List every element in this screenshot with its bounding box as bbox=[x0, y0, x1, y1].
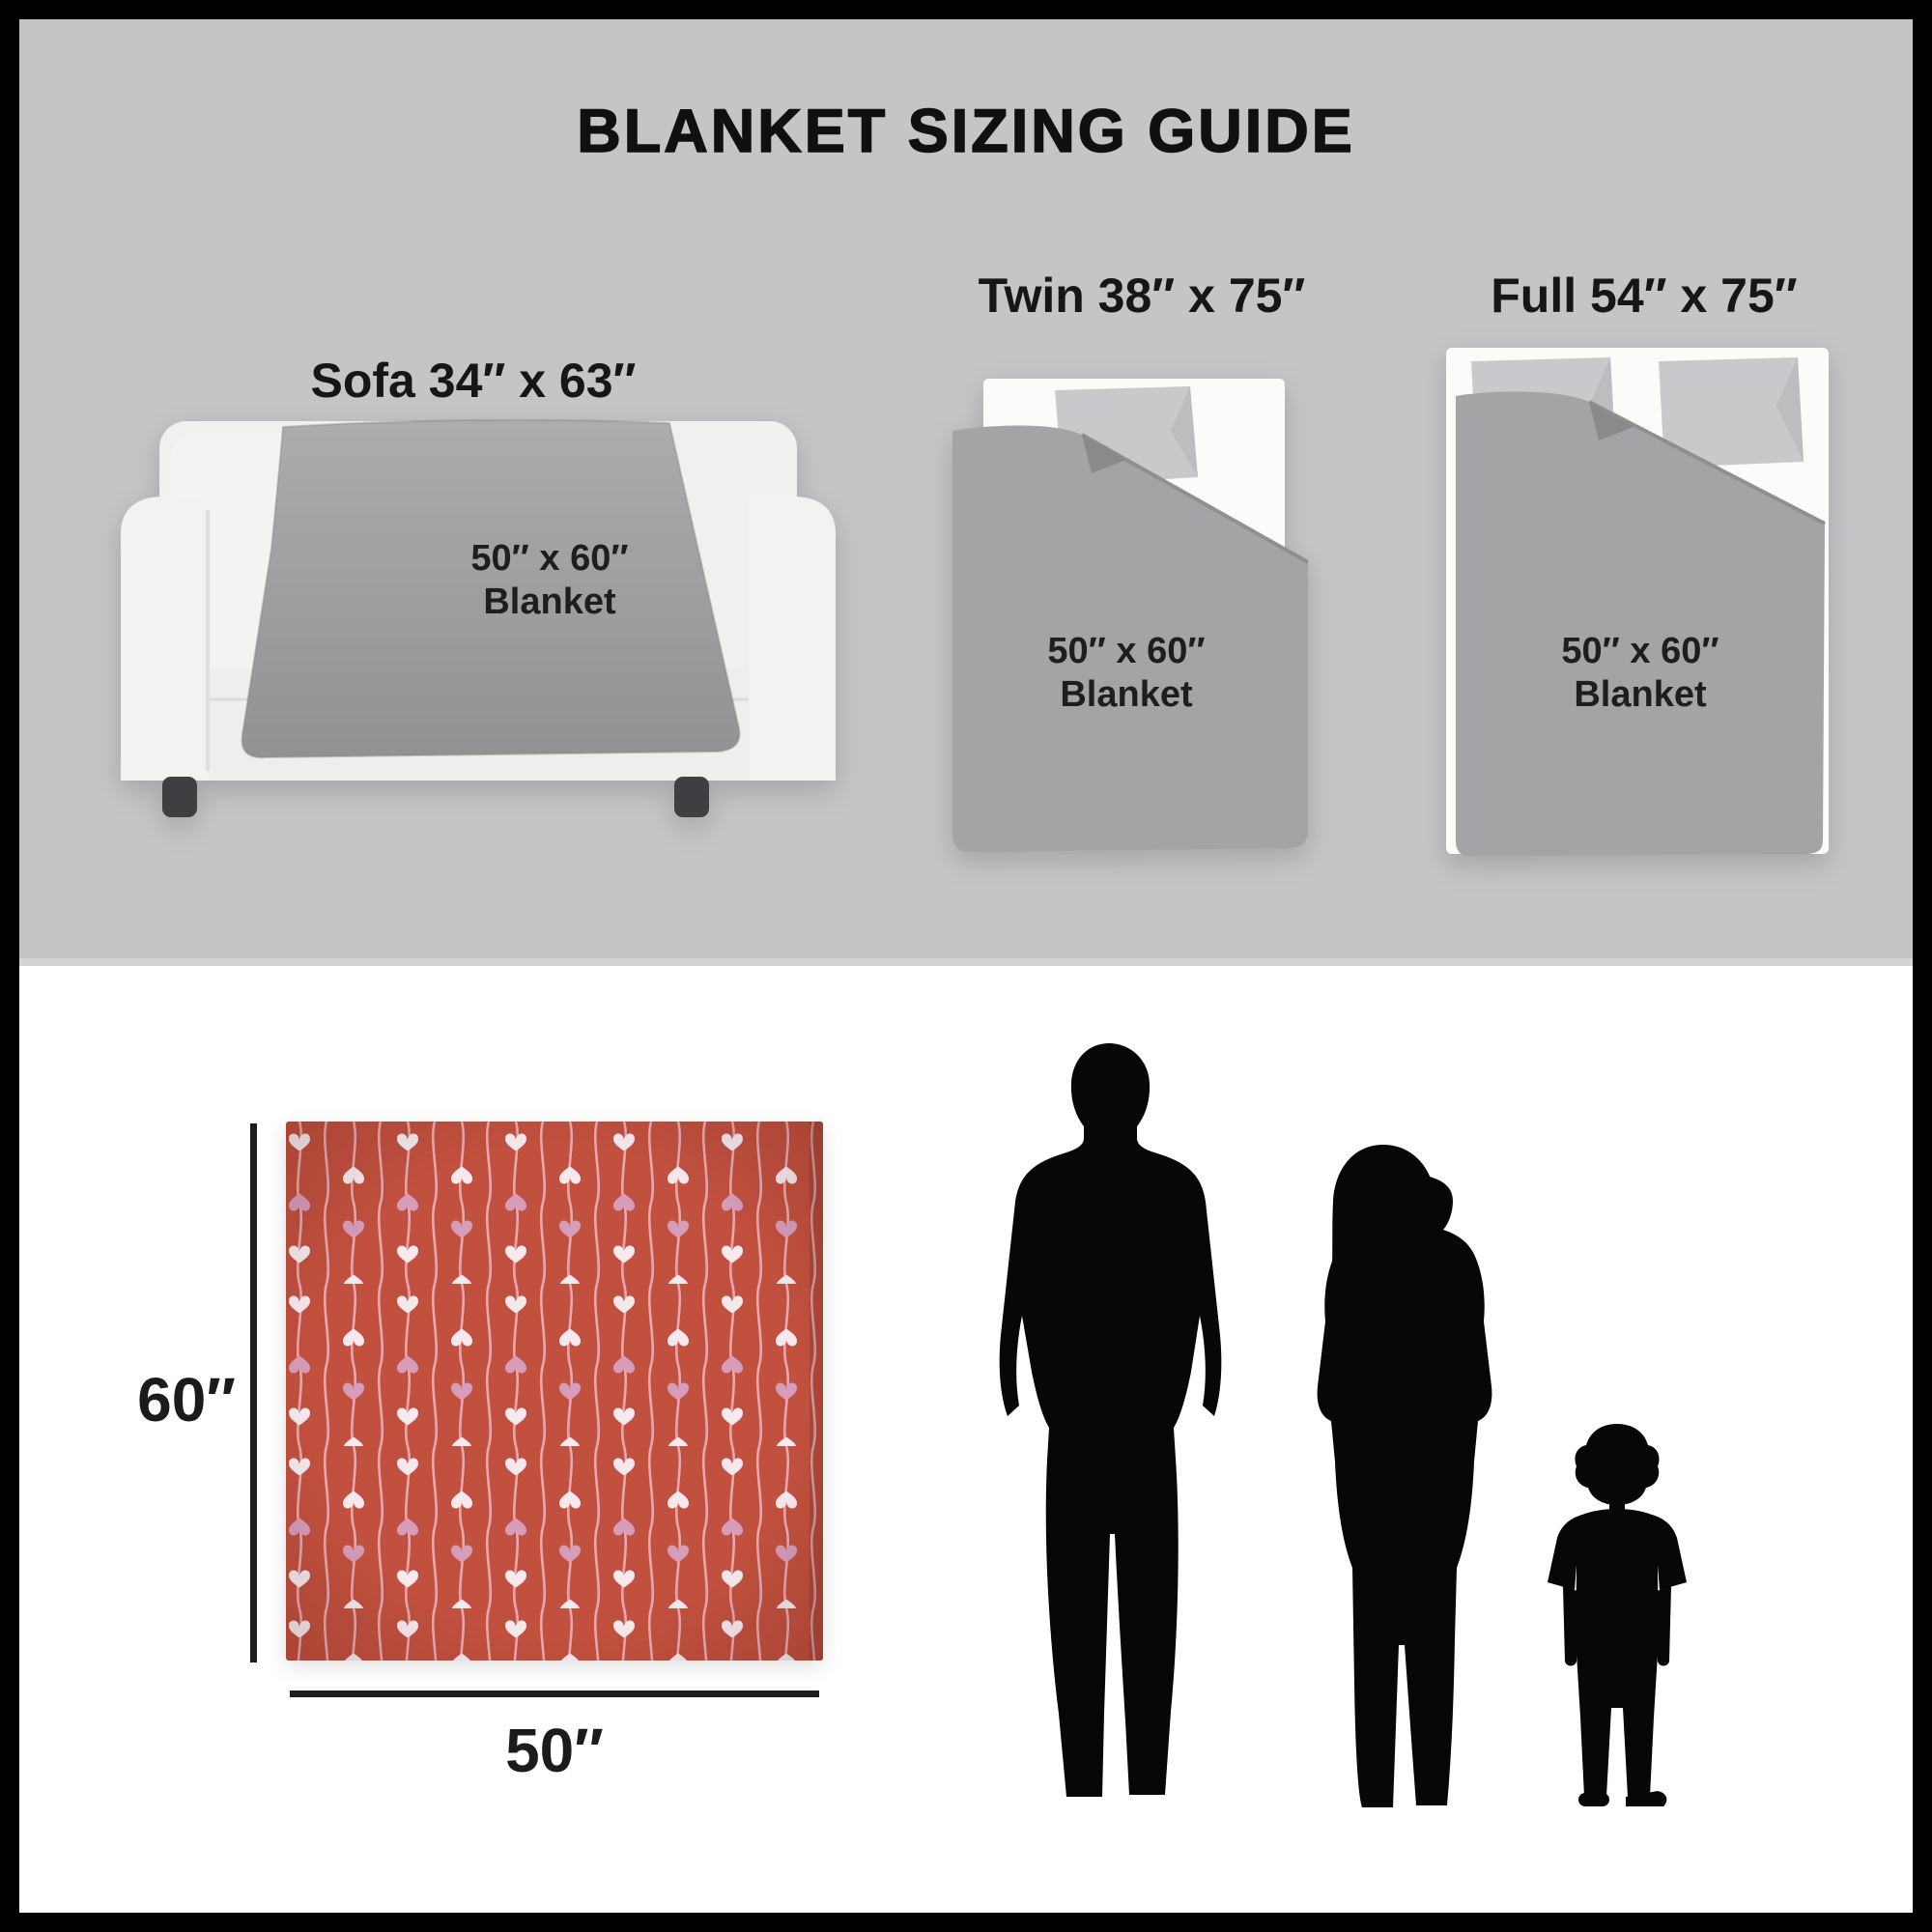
child-silhouette bbox=[1534, 1418, 1714, 1814]
red-heart-blanket bbox=[286, 1122, 823, 1661]
blanket-word: Blanket bbox=[405, 581, 695, 624]
twin-blanket-label: 50″ x 60″ Blanket bbox=[981, 630, 1271, 717]
twin-bed-illustration bbox=[947, 377, 1314, 860]
full-bed-illustration bbox=[1444, 346, 1831, 858]
man-silhouette bbox=[985, 1041, 1233, 1814]
blanket-size-text: 50″ x 60″ bbox=[405, 537, 695, 581]
full-blanket-label: 50″ x 60″ Blanket bbox=[1495, 630, 1785, 717]
blanket-sizing-guide: BLANKET SIZING GUIDE Sofa 34″ x 63″ 50″ … bbox=[0, 0, 1932, 1932]
blanket-size-text: 50″ x 60″ bbox=[1495, 630, 1785, 673]
sofa-right-arm bbox=[749, 497, 836, 781]
blanket-word: Blanket bbox=[1495, 673, 1785, 717]
blanket-shading bbox=[286, 1122, 823, 1661]
full-size-heading: Full 54″ x 75″ bbox=[1403, 268, 1886, 324]
sofa-size-heading: Sofa 34″ x 63″ bbox=[184, 353, 763, 409]
woman-silhouette bbox=[1273, 1143, 1493, 1814]
twin-size-heading: Twin 38″ x 75″ bbox=[900, 268, 1383, 324]
height-dimension-line bbox=[250, 1123, 257, 1662]
sofa-blanket-label: 50″ x 60″ Blanket bbox=[405, 537, 695, 624]
height-dimension-label: 60″ bbox=[100, 1364, 236, 1435]
blanket-word: Blanket bbox=[981, 673, 1271, 717]
width-dimension-line bbox=[290, 1690, 819, 1697]
blanket-size-text: 50″ x 60″ bbox=[981, 630, 1271, 673]
sofa-foot bbox=[162, 777, 197, 817]
woman-figure bbox=[1318, 1172, 1492, 1807]
width-dimension-label: 50″ bbox=[433, 1715, 676, 1786]
section-divider bbox=[19, 958, 1913, 966]
sofa-foot bbox=[674, 777, 709, 817]
sofa-left-arm bbox=[121, 497, 208, 781]
page-title: BLANKET SIZING GUIDE bbox=[0, 97, 1932, 166]
child-figure bbox=[1548, 1424, 1687, 1806]
man-figure bbox=[1000, 1043, 1222, 1797]
